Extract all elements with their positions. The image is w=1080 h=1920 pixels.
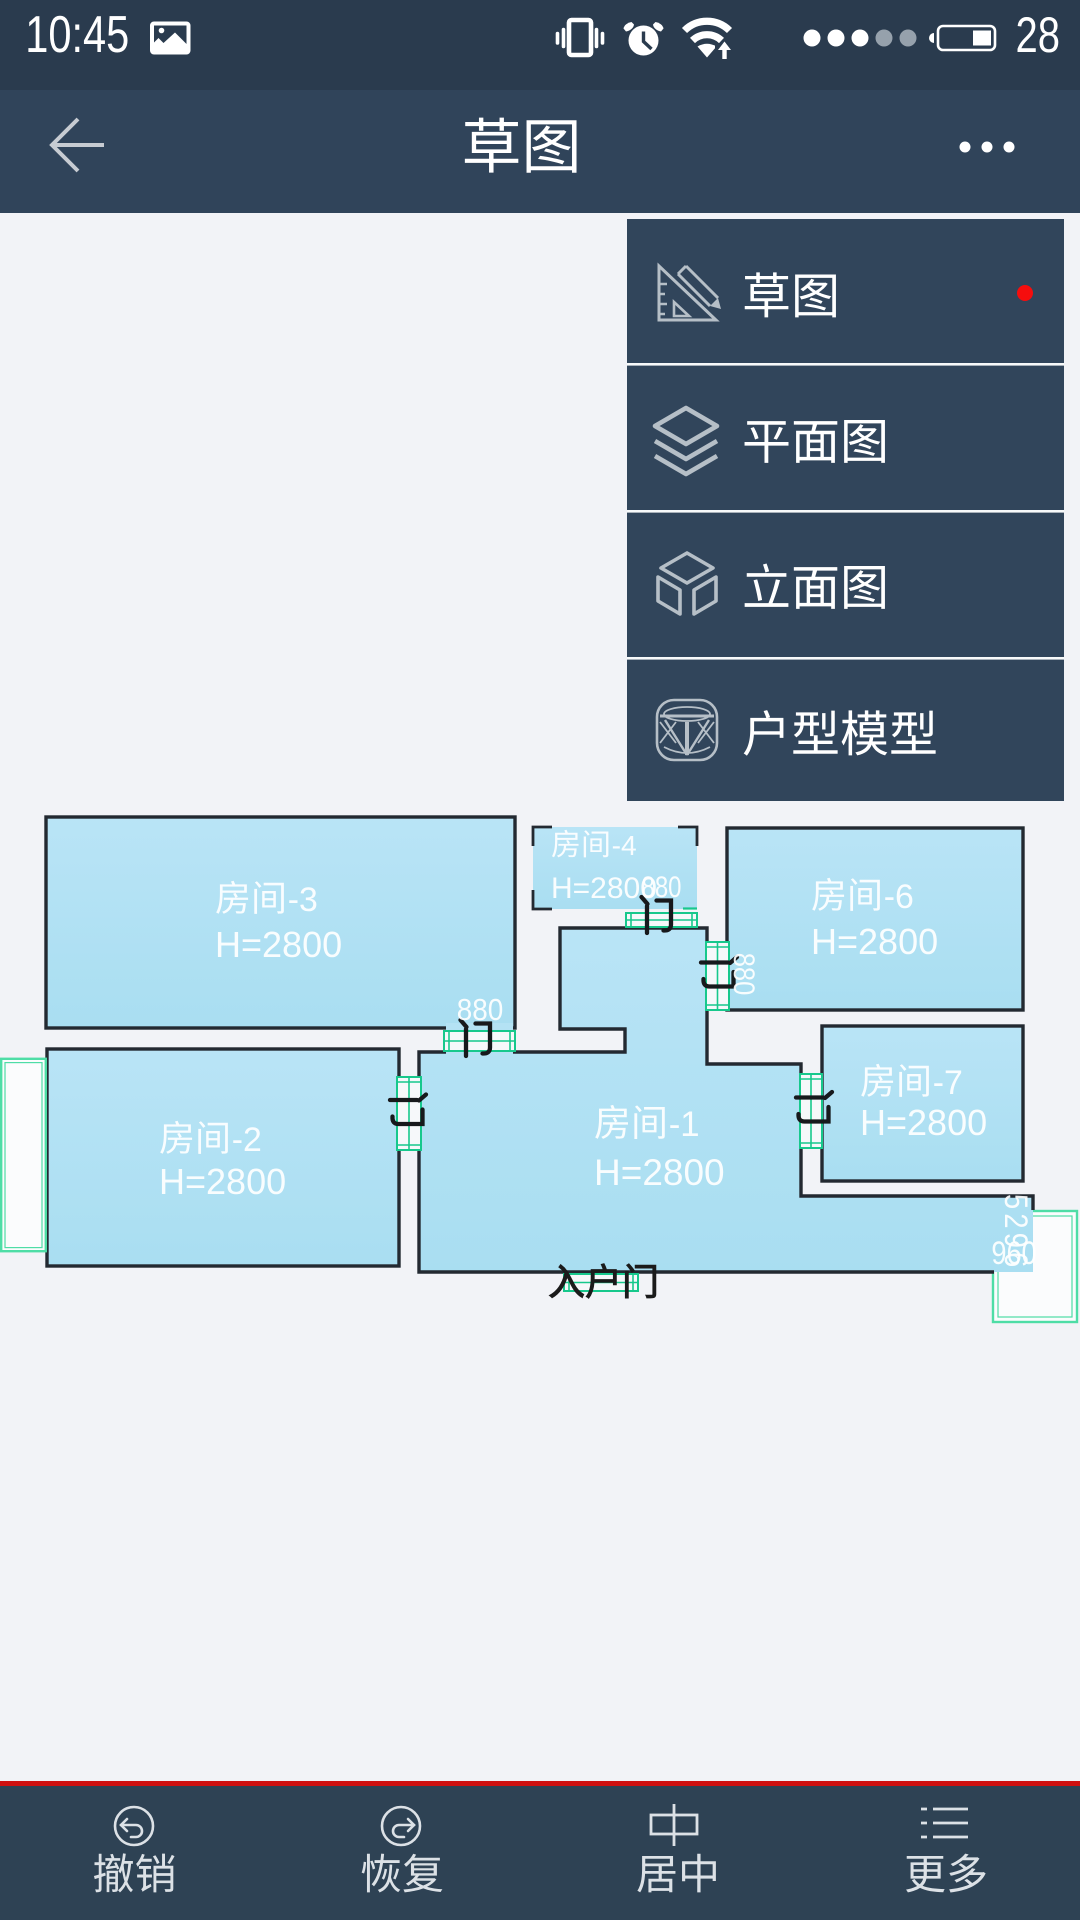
- svg-text:H=2800: H=2800: [811, 921, 938, 962]
- svg-text:H=2800: H=2800: [215, 924, 342, 965]
- svg-text:880: 880: [641, 869, 681, 903]
- svg-text:-4: -4: [612, 829, 637, 861]
- svg-text:H=2800: H=2800: [594, 1152, 725, 1193]
- svg-text:-1: -1: [669, 1106, 700, 1144]
- svg-text:H=2800: H=2800: [860, 1102, 987, 1143]
- svg-text:H=2800: H=2800: [159, 1161, 286, 1202]
- svg-text:880: 880: [727, 953, 760, 996]
- svg-text:-2: -2: [232, 1121, 262, 1159]
- svg-text:-7: -7: [933, 1064, 963, 1102]
- svg-text:28: 28: [1016, 7, 1060, 63]
- svg-text:880: 880: [457, 993, 504, 1028]
- svg-text:10:45: 10:45: [25, 5, 129, 64]
- svg-text:960: 960: [991, 1236, 1036, 1272]
- svg-text:-3: -3: [288, 881, 318, 919]
- svg-text:-6: -6: [884, 878, 914, 916]
